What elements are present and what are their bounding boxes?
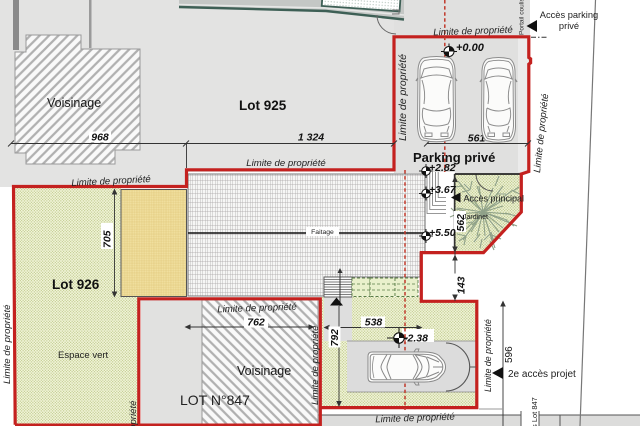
svg-text:Accès principal: Accès principal — [464, 194, 525, 204]
svg-text:LOT N°847: LOT N°847 — [180, 392, 250, 408]
svg-text:Limite de propriété: Limite de propriété — [246, 158, 325, 169]
svg-text:Limite de propriété: Limite de propriété — [397, 54, 409, 141]
svg-text:Portail couliss: Portail couliss — [519, 0, 526, 35]
svg-text:Faitage: Faitage — [311, 229, 334, 236]
svg-text:792: 792 — [329, 329, 341, 347]
svg-text:+3.67: +3.67 — [429, 184, 457, 196]
svg-text:Lot 925: Lot 925 — [239, 98, 287, 113]
svg-text:968: 968 — [91, 132, 109, 144]
svg-text:s Lot 847: s Lot 847 — [530, 397, 539, 426]
svg-text:+5.50: +5.50 — [429, 227, 456, 239]
svg-text:762: 762 — [247, 317, 265, 329]
svg-text:Voisinage: Voisinage — [47, 96, 101, 110]
svg-text:Parking privé: Parking privé — [413, 150, 495, 165]
svg-text:Espace vert: Espace vert — [58, 350, 109, 361]
svg-text:705: 705 — [102, 230, 114, 248]
svg-text:privé: privé — [559, 21, 579, 31]
svg-text:Lot 926: Lot 926 — [52, 277, 100, 292]
svg-text:2e accès projet: 2e accès projet — [508, 369, 576, 380]
svg-text:1 324: 1 324 — [298, 132, 324, 144]
svg-text:Limite de propriété: Limite de propriété — [2, 305, 13, 384]
svg-text:596: 596 — [504, 346, 515, 363]
svg-text:Jardinet: Jardinet — [463, 214, 488, 221]
svg-text:Voisinage: Voisinage — [237, 364, 291, 378]
svg-text:-2.38: -2.38 — [404, 333, 428, 345]
svg-text:Accès parking: Accès parking — [540, 10, 598, 20]
svg-text:+0.00: +0.00 — [456, 42, 485, 54]
svg-text:Limite de propriété: Limite de propriété — [310, 326, 321, 405]
svg-text:143: 143 — [456, 276, 468, 294]
svg-text:538: 538 — [365, 317, 383, 329]
svg-text:Limite de propriété: Limite de propriété — [128, 401, 139, 426]
svg-text:Limite de propriété: Limite de propriété — [483, 319, 493, 392]
